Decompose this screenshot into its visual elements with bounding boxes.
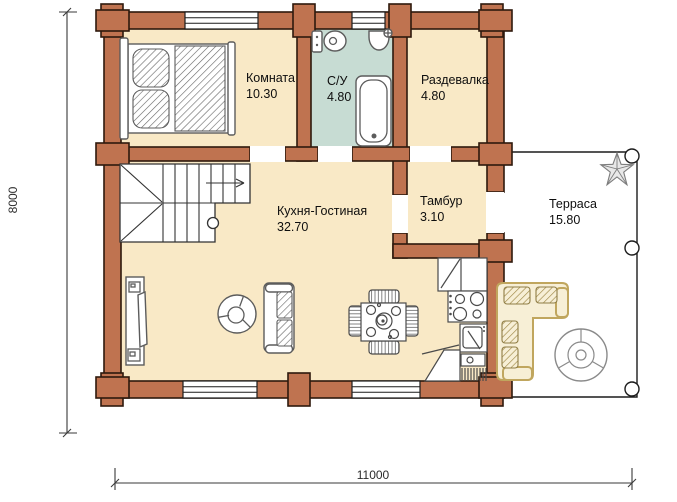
post-icon — [625, 382, 639, 396]
post-icon — [625, 241, 639, 255]
log-tab — [288, 373, 310, 406]
grille-icon — [462, 368, 486, 381]
chair-icon — [369, 341, 399, 354]
room-area: 15.80 — [549, 213, 580, 227]
wall-segment — [352, 147, 410, 161]
room-name: Тамбур — [420, 194, 462, 208]
room-name: С/У — [327, 74, 348, 88]
log-tab — [479, 143, 512, 165]
dimension-left-value: 8000 — [6, 186, 20, 213]
chair-icon — [369, 290, 399, 303]
door-opening — [318, 146, 352, 162]
floor-plan-page: Комната 10.30 С/У 4.80 Раздевалка 4.80 К… — [0, 0, 677, 502]
chair-icon — [349, 306, 362, 336]
toilet-icon — [312, 31, 346, 52]
stove-icon — [448, 291, 487, 322]
tv-icon — [138, 292, 147, 347]
dimension-bottom-value: 11000 — [357, 468, 390, 482]
door-opening — [486, 192, 504, 233]
kitchen-sink-icon — [460, 324, 487, 352]
room-area: 10.30 — [246, 87, 277, 101]
window — [352, 12, 385, 29]
wall-segment — [297, 29, 311, 161]
wall-segment — [285, 147, 318, 161]
room-name: Раздевалка — [421, 73, 489, 87]
chair-icon — [405, 306, 418, 336]
room-area: 32.70 — [277, 220, 308, 234]
window — [185, 12, 258, 29]
wall-segment — [104, 12, 121, 398]
room-name: Терраса — [549, 197, 597, 211]
post-icon — [625, 149, 639, 163]
room-name: Кухня-Гостиная — [277, 204, 367, 218]
round-table-icon — [555, 329, 607, 381]
bathtub-icon — [356, 76, 391, 146]
room-area: 4.80 — [327, 90, 351, 104]
door-opening — [410, 146, 451, 162]
log-tab — [479, 10, 512, 31]
room-area: 3.10 — [420, 210, 444, 224]
wall-segment — [393, 29, 407, 195]
door-opening — [250, 146, 285, 162]
log-tab — [96, 10, 129, 31]
stair-newel-post — [208, 218, 219, 229]
log-tab — [96, 143, 129, 165]
room-area: 4.80 — [421, 89, 445, 103]
sofa-icon — [264, 283, 294, 353]
armchair-icon — [218, 295, 256, 333]
wall-segment — [121, 147, 250, 161]
door-opening — [392, 195, 408, 233]
window — [352, 381, 420, 398]
wall-segment — [393, 244, 490, 258]
window — [183, 381, 257, 398]
log-tab — [96, 377, 129, 398]
tv-stand-icon — [126, 277, 147, 365]
bed-icon — [120, 38, 235, 139]
room-name: Комната — [246, 71, 295, 85]
floor-plan: Комната 10.30 С/У 4.80 Раздевалка 4.80 К… — [0, 0, 677, 502]
